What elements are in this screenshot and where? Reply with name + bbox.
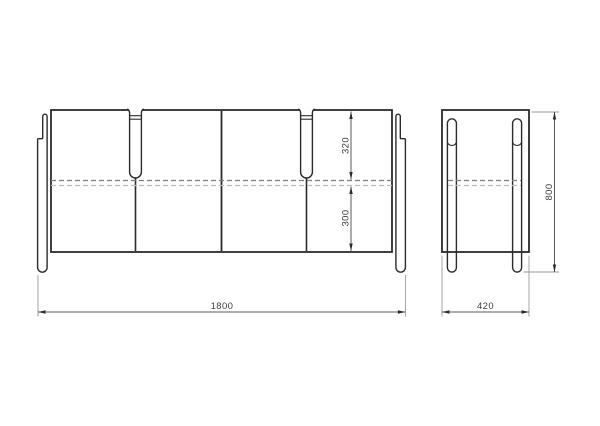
arrow-side-height-up [553, 112, 556, 120]
front-leg-left [38, 114, 48, 272]
side-leg-back-shoulder-arc [513, 142, 522, 145]
arrow-top-section-down [349, 172, 352, 180]
arrow-top-section-up [349, 112, 352, 120]
dim-label-front-width: 1800 [211, 301, 234, 312]
front-leg-right [396, 114, 406, 272]
arrow-bottom-section-up [349, 187, 352, 195]
arrow-side-height-down [553, 265, 556, 273]
arrow-side-depth-left [442, 310, 450, 313]
arrow-bottom-section-down [349, 244, 352, 252]
side-leg-front [447, 119, 456, 272]
technical-drawing: 1800 420 320 300 800 [0, 0, 600, 426]
dim-label-bottom-section: 300 [341, 209, 352, 226]
side-leg-front-shoulder-arc [447, 142, 456, 145]
extension-lines [38, 112, 559, 317]
side-leg-back [513, 119, 522, 272]
arrow-side-depth-right [522, 310, 530, 313]
dimension-arrows [38, 112, 556, 314]
side-view [442, 110, 529, 272]
dim-label-side-depth: 420 [477, 301, 494, 312]
dimension-labels: 1800 420 320 300 800 [211, 137, 555, 312]
arrow-front-width-right [398, 310, 406, 313]
drawing-canvas: 1800 420 320 300 800 [0, 0, 600, 426]
dim-label-side-height: 800 [544, 183, 555, 200]
dimension-lines [38, 112, 555, 313]
dim-label-top-section: 320 [341, 137, 352, 154]
arrow-front-width-left [38, 310, 46, 313]
